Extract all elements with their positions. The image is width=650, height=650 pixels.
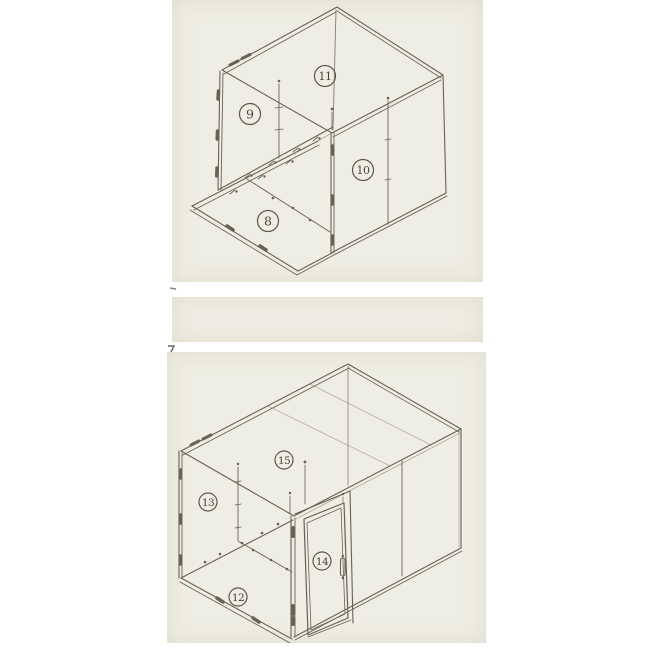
fastener-dot xyxy=(289,492,291,494)
fastener-dot xyxy=(237,463,239,465)
floor-front-edge xyxy=(181,578,292,639)
door-handle-mount xyxy=(342,577,344,579)
cam-lock xyxy=(191,441,199,445)
callout-label-15: 15 xyxy=(278,455,290,467)
fastener-dot xyxy=(270,559,273,562)
wall13-bottom-edge xyxy=(181,520,293,578)
wall10-top-inner xyxy=(333,80,441,137)
roof-edge-thickness-left xyxy=(224,12,336,74)
wall10-bottom-edge xyxy=(331,193,446,253)
floor-seam xyxy=(247,179,330,232)
seam-tick xyxy=(385,139,391,140)
callout-label-9: 9 xyxy=(246,107,254,122)
wall10-right-edge xyxy=(443,75,446,193)
cam-lock xyxy=(217,598,223,602)
fastener-dot xyxy=(309,219,312,222)
fastener-dot xyxy=(331,108,334,111)
roof-outline xyxy=(181,364,461,516)
callouts-bottom: 12 13 14 15 xyxy=(199,451,331,606)
callouts-top: 8 9 10 11 xyxy=(240,66,374,232)
cam-lock xyxy=(227,226,233,230)
fastener-dot xyxy=(304,461,307,464)
junction-fasteners xyxy=(230,137,321,194)
cam-lock xyxy=(242,55,250,59)
floor-front-edge xyxy=(192,206,298,271)
cam-lock xyxy=(230,61,238,65)
roof-edge-thickness-right xyxy=(337,11,441,78)
wall9-bottom-edge xyxy=(218,127,333,190)
wall10-bottom-edge2 xyxy=(332,196,447,256)
door-frame-top xyxy=(295,491,350,514)
scanned-page: 8 9 10 11 xyxy=(0,0,650,650)
seam-tick xyxy=(235,504,241,505)
exploded-view-figure: 8 9 10 11 xyxy=(172,0,483,282)
figure-top-paper: 8 9 10 11 xyxy=(172,0,483,282)
floor-back-edge2 xyxy=(194,145,319,210)
fastener-dot xyxy=(387,97,390,100)
seam-tick xyxy=(275,129,283,130)
callout-label-8: 8 xyxy=(264,214,272,229)
paper-strip xyxy=(172,297,483,342)
cam-lock xyxy=(260,246,266,250)
seam-tick xyxy=(275,107,283,108)
doorwall-top-inner xyxy=(296,433,460,519)
roof-edge-thickness-right xyxy=(348,368,459,432)
callout-label-12: 12 xyxy=(232,592,244,604)
fastener-dot xyxy=(292,207,295,210)
door-frame-right xyxy=(350,491,353,623)
callout-label-14: 14 xyxy=(316,556,329,568)
seam-tick xyxy=(235,481,241,482)
seam-tick xyxy=(235,527,241,528)
cam-lock xyxy=(253,618,259,622)
floor-front-edge2 xyxy=(190,210,297,275)
callout-label-10: 10 xyxy=(357,164,370,177)
scan-artifact xyxy=(160,280,190,360)
roof-edge-thickness-left xyxy=(183,368,349,455)
seam-tick xyxy=(385,179,391,180)
assembled-view-figure: 12 13 14 15 xyxy=(167,352,486,643)
door-handle-mount xyxy=(342,555,344,557)
fastener-dot xyxy=(278,80,281,83)
floor-back-edge xyxy=(192,141,318,206)
callout-label-13: 13 xyxy=(202,497,214,509)
figure-bottom-paper: 12 13 14 15 xyxy=(167,352,486,643)
roof-panel-outline xyxy=(222,7,443,133)
wall-left-post-inner xyxy=(221,73,223,190)
floor-seam xyxy=(238,541,292,572)
fastener-dot xyxy=(272,197,275,200)
floor-right-edge2 xyxy=(297,256,332,275)
fastener-dot xyxy=(252,549,255,552)
floor-right-edge xyxy=(298,253,332,271)
cam-lock xyxy=(218,91,219,99)
callout-label-11: 11 xyxy=(319,70,332,83)
cam-lock xyxy=(203,435,211,439)
fastener-dot xyxy=(286,568,289,571)
fastener-dot xyxy=(342,493,344,495)
